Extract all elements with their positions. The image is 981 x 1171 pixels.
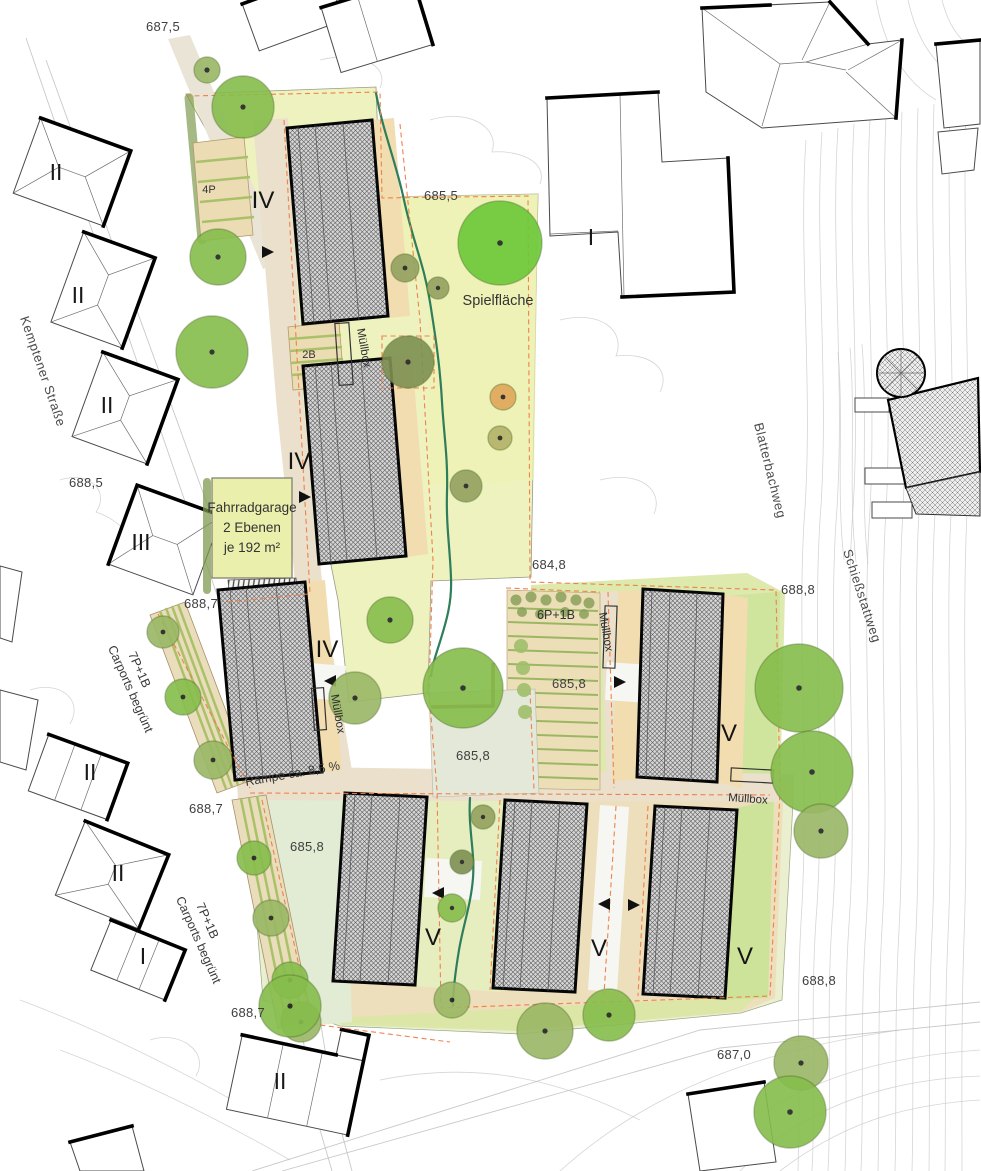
existing-building-label: III (131, 529, 150, 555)
existing-building (936, 40, 980, 128)
building-label-V: V (425, 924, 441, 951)
tree (237, 841, 271, 875)
existing-building (702, 2, 902, 128)
elevation-label: 688,8 (781, 582, 815, 597)
tree (583, 989, 635, 1041)
elevation-label: 687,5 (146, 19, 180, 34)
shrub (514, 639, 528, 653)
building-V-east (637, 589, 723, 782)
tree (382, 336, 434, 388)
tree (391, 254, 419, 282)
parking-2b-label: 2B (302, 349, 315, 361)
play-area-label: Spielfläche (463, 293, 534, 309)
tree (253, 900, 289, 936)
existing-building-label: II (101, 392, 114, 418)
existing-building (51, 232, 155, 348)
tree (165, 679, 201, 715)
elevation-label: 684,8 (532, 557, 566, 572)
building-label-IV: IV (252, 187, 275, 214)
elevation-label: 687,0 (717, 1047, 751, 1062)
street-label-blatterbachweg: Blatterbachweg (751, 421, 789, 520)
building-label-V: V (591, 935, 607, 962)
bike-garage-label: 2 Ebenen (223, 520, 281, 535)
tree (755, 644, 843, 732)
tree (147, 616, 179, 648)
tree (194, 57, 220, 83)
elevation-label: 688,8 (802, 973, 836, 988)
elevation-label: 688,7 (189, 801, 223, 816)
tree (194, 741, 232, 779)
existing-building-label: I (588, 224, 594, 250)
bike-garage-label: je 192 m² (223, 540, 281, 555)
building-V-southmiddle (493, 800, 587, 992)
building-label-V: V (721, 720, 737, 747)
tree (176, 316, 248, 388)
shrub (518, 705, 532, 719)
existing-building (547, 92, 734, 297)
tree (367, 597, 413, 643)
tree (450, 850, 474, 874)
tree (471, 805, 495, 829)
building-IV-middle (303, 358, 406, 564)
existing-building-label: I (140, 943, 146, 969)
elevation-label: 685,8 (456, 748, 490, 763)
bike-garage-label: Fahrradgarage (207, 500, 296, 515)
tree (517, 1003, 573, 1059)
tree (438, 894, 466, 922)
shrub (517, 683, 531, 697)
existing-building (91, 920, 185, 1000)
elevation-label: 685,8 (290, 839, 324, 854)
building-V-southeast (643, 806, 737, 998)
elevation-label: 688,5 (69, 475, 103, 490)
elevation-label: 688,7 (184, 596, 218, 611)
tree (434, 982, 470, 1018)
parking-6p1b-label: 6P+1B (537, 608, 575, 622)
street-label-schiessstattweg: Schießstattweg (840, 547, 884, 644)
existing-building (13, 118, 131, 226)
street-label-kemptener-strasse: Kemptener Straße (17, 314, 69, 428)
existing-building-label: II (50, 159, 63, 185)
tree (488, 426, 512, 450)
shrub (516, 661, 530, 675)
site-plan-canvas: 687,5 685,5 688,5 684,8 688,7 688,8 685,… (0, 0, 981, 1171)
tree (423, 648, 503, 728)
existing-building (321, 0, 433, 73)
building-label-IV: IV (316, 636, 339, 663)
elevation-label: 688,7 (231, 1005, 265, 1020)
elevation-label: 685,8 (552, 676, 586, 691)
existing-building-label: II (84, 759, 97, 785)
building-IV-north (287, 120, 388, 324)
building-IV-south (218, 582, 322, 780)
existing-building-label: II (274, 1068, 287, 1094)
tree (794, 804, 848, 858)
site-plan: 687,5 685,5 688,5 684,8 688,7 688,8 685,… (0, 0, 981, 1171)
existing-building-label: II (112, 860, 125, 886)
existing-building-hatched (855, 349, 980, 518)
carports-label-north: 7P+1B Carports begrünt (105, 637, 171, 735)
building-V-southwest (333, 793, 427, 985)
tree (754, 1076, 826, 1148)
tree (490, 384, 516, 410)
tree (259, 975, 321, 1037)
elevation-label: 685,5 (424, 188, 458, 203)
carports-label-south: 7P+1B Carports begrünt (173, 888, 239, 986)
existing-building (938, 128, 978, 174)
tree (190, 229, 246, 285)
existing-building (28, 734, 127, 819)
tree (212, 76, 274, 138)
building-label-V: V (737, 943, 753, 970)
tree (771, 731, 853, 813)
parking-4p-label: 4P (202, 184, 215, 196)
tree (450, 470, 482, 502)
existing-building (72, 352, 178, 464)
tree (427, 277, 449, 299)
existing-building-label: II (72, 282, 85, 308)
tree (458, 201, 542, 285)
building-label-IV: IV (288, 448, 311, 475)
